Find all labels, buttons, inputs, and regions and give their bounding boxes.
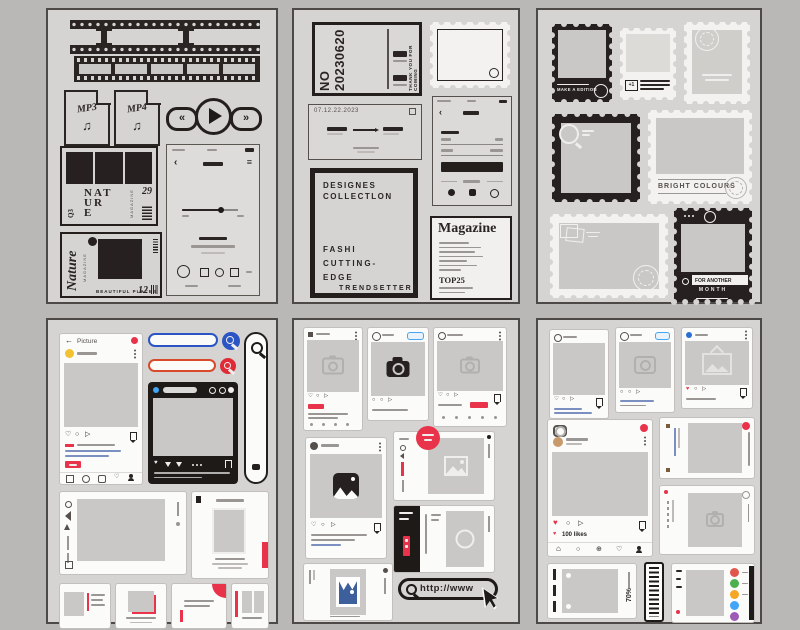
frame-title-line: DESIGNES	[323, 181, 376, 190]
share-icon: ▷	[85, 431, 90, 438]
hashtag-bar	[311, 544, 341, 546]
text-bar	[439, 242, 469, 244]
nav-add-icon	[98, 475, 106, 483]
script-title: Nature	[65, 237, 81, 291]
kebab-menu-icon	[355, 335, 357, 337]
text-bar	[357, 151, 375, 153]
sticker-sheet-4: ← Picture ♡ ○ ▷ ♡	[46, 318, 278, 624]
ticket-stamp-block	[393, 51, 407, 57]
divider	[487, 181, 503, 182]
text-bar	[327, 133, 343, 135]
thanks-label: THANK YOU FOR COMING	[408, 27, 418, 91]
film-ibeam	[178, 27, 194, 47]
status-bar	[172, 149, 185, 151]
text-bar	[439, 265, 477, 267]
text-bar	[383, 133, 399, 135]
red-accent-line	[180, 610, 183, 622]
url-text: http://www	[420, 583, 474, 594]
field-text	[441, 138, 451, 141]
magazine-title: Magazine	[438, 221, 496, 237]
nav-home-icon	[66, 475, 74, 483]
red-accent-line	[87, 593, 89, 611]
photo-card-wide	[60, 492, 186, 574]
text-bar	[242, 617, 262, 619]
vertical-text-bar	[177, 502, 179, 516]
play-button-icon	[195, 98, 232, 135]
social-login-icon	[469, 189, 476, 196]
photo-placeholder	[77, 499, 165, 561]
field-hint	[495, 138, 503, 141]
doodle-line	[582, 134, 590, 136]
header-icon	[209, 387, 216, 394]
field-underline	[441, 144, 503, 145]
film-strip-frames-sticker	[74, 56, 260, 82]
cover-photo	[125, 152, 152, 184]
username-bar	[566, 438, 588, 441]
action-button	[308, 404, 324, 409]
month-label: MONTH	[678, 287, 748, 295]
red-accent-line	[401, 462, 404, 476]
photo-card-vertical-words	[548, 564, 636, 618]
search-icon	[224, 362, 232, 370]
red-accent-strip	[262, 542, 268, 568]
badge-text-bar	[424, 439, 432, 441]
issue-number: 12	[138, 285, 148, 296]
divider	[548, 542, 652, 543]
date-label: 07.12.22.2023	[314, 108, 359, 114]
film-perforation	[77, 58, 257, 62]
text-bar	[439, 247, 481, 249]
ellipsis-icon	[196, 464, 198, 466]
share-icon: ▷	[388, 398, 392, 404]
social-post-100-likes: ♥ ○ ▷ ♥ 100 likes ⌂ ○ ⊕ ♡	[548, 420, 652, 556]
photo-card-landscape	[394, 432, 494, 500]
field-hint	[490, 149, 503, 152]
back-chevron-icon: ‹	[439, 108, 442, 117]
percent-label: 70%	[626, 578, 633, 602]
edition-label: MAKE A EDITION	[557, 87, 597, 92]
dot-icon	[487, 435, 491, 439]
brand-label: MAGAZINE	[129, 188, 134, 218]
text-bar	[439, 269, 461, 271]
text-bar	[439, 256, 483, 258]
time-label	[237, 215, 244, 217]
photo-placeholder	[446, 511, 484, 567]
text-bar	[218, 567, 242, 569]
sticker-sheet-3: MAKE A EDITION +1 BRIGHT COLOURS	[536, 8, 762, 304]
text-bar	[640, 88, 664, 90]
comment-icon: ○	[75, 431, 79, 438]
mini-card	[232, 584, 268, 628]
search-icon	[406, 584, 417, 595]
player-control-icon	[215, 268, 224, 277]
likes-count: 100 likes	[562, 532, 587, 538]
sticker-sheet-2: NO 20230620 THANK YOU FOR COMING 07.12.2…	[292, 8, 520, 304]
bookmark-icon	[639, 521, 646, 529]
black-stamp-square	[552, 114, 640, 202]
comment-icon: ○	[628, 390, 631, 396]
photo-placeholder	[553, 343, 605, 395]
play-triangle-icon	[209, 108, 222, 124]
social-post-frame-picture: ♥ ○ ▷	[682, 328, 752, 408]
artist-line	[201, 252, 225, 254]
magazine-text-sticker: Magazine TOP25	[430, 216, 512, 300]
barcode-sticker	[644, 562, 664, 622]
app-logo-icon	[153, 387, 159, 393]
red-accent-line	[235, 591, 238, 617]
bookmark-icon	[225, 460, 232, 468]
photo-grid-placeholder	[242, 591, 264, 613]
nav-profile-icon	[636, 550, 642, 553]
header-icon	[228, 387, 234, 393]
frame-text-line: CUTTING-	[323, 259, 377, 268]
photo-placeholder	[310, 454, 382, 518]
red-dot-icon	[664, 490, 668, 494]
avatar	[620, 332, 629, 341]
shape-triangle-icon	[65, 511, 71, 521]
hashtag-bar	[554, 412, 592, 414]
photo-placeholder	[688, 423, 742, 473]
hashtag-bar	[554, 408, 582, 410]
social-post-frame-camera: ○ ○ ▷	[368, 328, 428, 420]
sticker-sheet-5: ♡ ○ ▷ ○ ○ ▷ ♡ ○ ▷	[292, 318, 520, 624]
vertical-word-bar	[553, 585, 556, 596]
camera-placeholder-icon	[322, 358, 344, 375]
nav-profile-icon	[128, 478, 134, 481]
text-bar	[676, 586, 682, 588]
text-bar	[748, 432, 750, 466]
song-title-line	[191, 245, 235, 248]
bookmark-icon	[596, 398, 603, 406]
action-button	[65, 461, 81, 468]
text-bar	[330, 616, 360, 618]
username-bar	[695, 334, 708, 336]
triangle-icon	[165, 462, 171, 467]
music-player-sticker: ‹ ≡	[166, 144, 260, 296]
time-label	[182, 215, 189, 217]
text-bar	[91, 599, 103, 601]
comment-icon: ○	[316, 394, 319, 400]
bookmark-icon	[130, 432, 137, 440]
film-ibeam	[96, 27, 112, 47]
vertical-text-bar	[674, 428, 676, 456]
white-stamp-tall	[684, 22, 750, 104]
text-bar	[130, 622, 152, 624]
date-ticket-sticker: 07.12.22.2023	[308, 104, 422, 160]
music-note-icon: ♫	[66, 119, 108, 132]
vertical-text-bar	[67, 536, 69, 550]
nav-search-icon: ○	[576, 546, 580, 553]
red-vertical-button	[403, 536, 410, 556]
bottom-tab-label	[228, 285, 241, 287]
comment-icon: ○	[562, 397, 565, 403]
field-underline	[441, 155, 503, 156]
vertical-search-pill-sticker	[244, 332, 268, 484]
sticker-sheet-1: MP3 ♫ MP4 ♫ « » Q3 NAT UR E MAGAZINE 29	[46, 8, 278, 304]
corner-square-icon	[65, 561, 73, 569]
nav-home-icon: ⌂	[556, 545, 561, 553]
dashed-text-bar	[667, 498, 669, 528]
fast-forward-icon: »	[230, 107, 262, 131]
dot-icon	[566, 573, 571, 578]
magnifier-doodle-icon	[559, 124, 579, 144]
text-bar	[399, 518, 409, 520]
seal-icon	[489, 68, 499, 78]
username-bar	[321, 444, 339, 447]
corner-block	[196, 496, 201, 503]
text-bar	[439, 292, 465, 294]
media-controls-sticker: « »	[166, 98, 262, 136]
back-chevron-icon: ‹	[174, 158, 177, 168]
cover-title: NAT UR E	[84, 188, 112, 218]
text-bar	[439, 287, 473, 289]
stamp-frame-sticker	[430, 22, 510, 88]
dot-icon	[176, 522, 180, 526]
triangle-icon	[176, 462, 182, 467]
pointer-blob-icon	[252, 464, 260, 470]
player-control-icon	[230, 268, 239, 277]
text-bar	[91, 604, 105, 606]
photo-placeholder	[64, 592, 84, 616]
badge-text-bar	[422, 434, 434, 436]
like-icon: ♡	[311, 522, 316, 528]
photo-placeholder	[307, 340, 359, 392]
text-bar	[393, 60, 407, 62]
dot-icon	[383, 568, 388, 573]
bottom-tab-label	[185, 285, 198, 287]
photo-placeholder	[686, 570, 724, 616]
photo-card-blue-image	[304, 564, 392, 620]
action-button	[470, 402, 488, 408]
text-bar	[308, 417, 338, 419]
text-bar	[702, 74, 732, 76]
avatar	[554, 334, 562, 342]
picture-frame-icon	[702, 353, 732, 375]
text-bar	[640, 84, 670, 86]
magazine-cover-nature-12: Nature MAGAZINE BEAUTIFUL PLACES 12	[60, 232, 162, 298]
avatar-blue-dot	[686, 332, 692, 338]
comment-icon: ○	[321, 522, 325, 528]
text-bar	[686, 398, 716, 400]
stamp-label-band: FOR ANOTHER	[678, 275, 748, 285]
vertical-text-bar	[309, 570, 311, 584]
comment-icon: ○	[446, 393, 449, 399]
text-bar	[742, 572, 748, 574]
black-stamp-portrait: MAKE A EDITION	[552, 24, 612, 102]
like-icon: ♥	[553, 519, 558, 527]
text-bar	[383, 127, 403, 131]
play-badge-icon	[88, 237, 97, 246]
vertical-text-bar	[425, 514, 427, 554]
social-icon-blue	[730, 601, 739, 610]
status-bar	[437, 100, 451, 102]
ticket-sticker: NO 20230620 THANK YOU FOR COMING	[312, 22, 422, 96]
like-icon: ♡	[438, 393, 443, 399]
login-button	[441, 162, 503, 172]
blue-image-icon	[336, 577, 360, 607]
nav-add-icon: ⊕	[596, 546, 602, 553]
mini-seal-icon	[682, 278, 689, 285]
rule-line	[658, 179, 726, 180]
barcode-stripes	[649, 567, 659, 617]
ticket-stamp-block	[393, 75, 407, 81]
search-input	[148, 359, 216, 372]
side-text-lines	[132, 239, 150, 267]
song-title-line	[199, 237, 227, 240]
text-bar	[353, 147, 379, 149]
text-bar	[439, 260, 467, 262]
player-control-icon	[177, 265, 190, 278]
text-bar	[705, 79, 729, 81]
mini-card	[116, 584, 166, 628]
barcode-icon	[151, 285, 158, 294]
camera-outline-icon	[634, 356, 656, 374]
seal-block	[678, 275, 692, 285]
social-icon-red	[730, 568, 739, 577]
mp4-label: MP4	[115, 100, 158, 117]
social-post-frame-camera-outline: ○ ○ ▷	[616, 328, 674, 412]
battery-icon	[499, 100, 507, 104]
social-post-picture-frame: ← Picture ♡ ○ ▷ ♡	[60, 334, 142, 484]
white-stamp-bright-colours: BRIGHT COLOURS	[648, 110, 752, 204]
like-icon: ♡	[554, 397, 559, 403]
picture-header-label: Picture	[77, 338, 97, 345]
username-bar	[630, 334, 642, 336]
dark-edge-strip	[749, 566, 754, 620]
divider	[387, 29, 389, 89]
brown-square-sticker	[666, 468, 670, 472]
text-bar	[439, 251, 475, 253]
text-bar	[126, 617, 156, 619]
notification-badge	[640, 424, 648, 432]
text-bar	[327, 127, 347, 131]
username-bar	[316, 333, 330, 335]
card-title-bar	[216, 499, 244, 502]
like-icon: ♥	[154, 460, 158, 466]
music-note-icon: ♫	[116, 119, 158, 132]
text-bar	[399, 438, 409, 440]
field-text	[441, 149, 453, 152]
share-icon: ▷	[454, 393, 458, 399]
comment-icon: ○	[566, 520, 570, 527]
cover-photo	[95, 152, 122, 184]
share-icon: ▷	[636, 390, 640, 396]
photo-placeholder	[437, 341, 503, 391]
text-bar	[640, 80, 670, 82]
arrow-line-icon	[353, 129, 375, 131]
bookmark-icon	[374, 523, 381, 531]
nav-dots	[442, 416, 445, 419]
seal-inner-icon	[729, 181, 743, 195]
text-bar	[393, 84, 407, 86]
text-bar	[154, 477, 202, 479]
header-icon	[219, 387, 226, 394]
brand-label: MAGAZINE	[82, 248, 87, 282]
camera-app-frame-sticker: ♥	[148, 382, 238, 484]
comment-icon: ○	[694, 387, 697, 393]
stamp-photo-area	[558, 30, 606, 78]
button-glyph	[405, 545, 408, 548]
battery-icon	[245, 148, 254, 152]
phone-login-sticker: ‹	[432, 96, 512, 206]
black-stamp-for-another-month: FOR ANOTHER MONTH	[674, 208, 752, 302]
text-bar	[184, 600, 214, 602]
barcode-icon	[153, 239, 158, 253]
hashtag-bar	[65, 450, 121, 452]
rule-line	[658, 193, 726, 194]
photo-placeholder	[685, 341, 749, 385]
photo-placeholder	[552, 452, 648, 516]
photo-placeholder	[371, 342, 425, 396]
nav-search-icon	[82, 475, 90, 483]
text-bar	[311, 534, 367, 536]
social-links-card	[672, 564, 754, 622]
kebab-menu-icon	[644, 440, 646, 442]
text-bar	[676, 578, 681, 580]
vertical-word-bar	[553, 569, 556, 580]
mp4-file-icon: MP4 ♫	[114, 90, 160, 146]
white-stamp-landscape	[550, 214, 668, 298]
text-bar	[308, 413, 348, 415]
kebab-menu-icon	[745, 334, 747, 336]
side-caption	[746, 426, 751, 466]
avatar	[310, 442, 318, 450]
social-post-frame: ♡ ○ ▷	[434, 328, 506, 426]
divider-label	[463, 180, 480, 183]
share-icon: ▷	[324, 394, 328, 400]
social-login-icon	[448, 189, 455, 196]
search-icon	[226, 336, 234, 344]
search-bar-red-sticker	[148, 358, 236, 374]
text-bar	[438, 404, 462, 406]
red-dot-icon	[676, 610, 680, 614]
film-frame	[79, 64, 111, 74]
issue-label: Q3	[67, 188, 75, 218]
nav-dots	[310, 423, 313, 426]
film-frame	[187, 64, 219, 74]
arrow-head-icon	[375, 128, 379, 132]
like-icon: ♥	[686, 387, 689, 393]
screen-placeholder	[153, 398, 233, 456]
frame-text-line: FASHI	[323, 245, 357, 254]
design-collection-frame-sticker: DESIGNES COLLECTLON FASHI CUTTING- EDGE …	[310, 168, 418, 298]
text-bar	[212, 563, 248, 565]
plus-one-box: +1	[625, 80, 638, 91]
social-login-icon	[490, 189, 499, 198]
seal-inner-icon	[700, 32, 714, 46]
photo-placeholder	[330, 569, 366, 615]
subtitle-bar	[566, 443, 582, 445]
frame-title-line: COLLECTLON	[323, 192, 393, 201]
bookmark-icon	[494, 394, 501, 402]
avatar	[438, 332, 446, 340]
photo-placeholder	[562, 569, 618, 613]
like-icon: ♡	[308, 394, 313, 400]
likes-heart-icon: ♥	[553, 532, 556, 538]
for-another-label: FOR ANOTHER	[695, 278, 731, 284]
photo-card-rotated	[660, 418, 754, 478]
username-bar	[382, 334, 394, 336]
frame-text-line: EDGE	[323, 273, 354, 282]
text-bar	[372, 409, 408, 411]
camera-icon	[387, 361, 410, 377]
social-icon-green	[730, 579, 739, 588]
text-bar	[184, 605, 210, 607]
like-icon: ○	[620, 390, 623, 396]
text-bar	[77, 444, 115, 446]
film-frames	[79, 64, 255, 74]
title-line: E	[84, 208, 112, 218]
